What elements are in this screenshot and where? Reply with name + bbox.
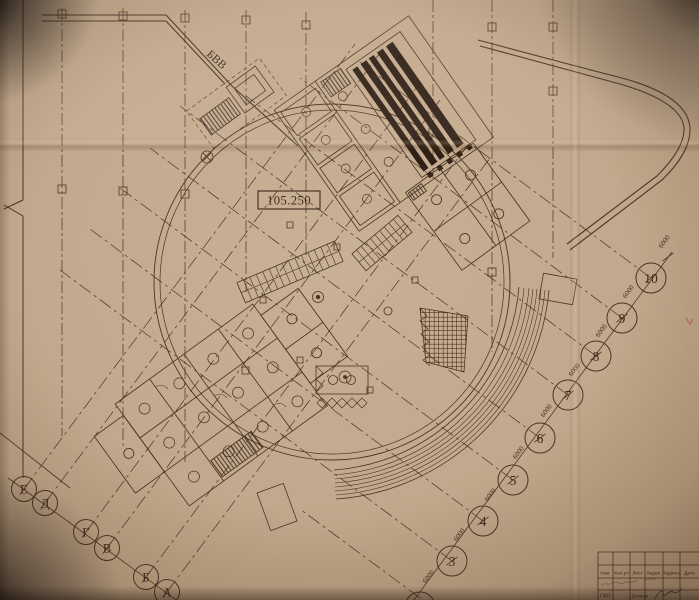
site-plan-drawing: 3 4 5 6 7 8 9 10 6000 6000 6000 6000 600… [0, 0, 699, 600]
axis-number: 8 [593, 349, 600, 364]
title-block-header: Подпись [662, 571, 681, 577]
axis-number: 4 [480, 514, 487, 529]
title-block-header: №док. [647, 571, 661, 577]
dimension-label-6000: 6000 [452, 526, 467, 542]
dimension-line-numbered: 3 4 5 6 7 8 9 10 6000 6000 6000 6000 600… [405, 233, 674, 600]
dimension-label-6000: 6000 [621, 283, 636, 299]
axis-number: 7 [565, 388, 572, 403]
survey-point-icon [201, 151, 213, 163]
axis-circle-2-partial [405, 592, 435, 600]
grid-marker-squares [58, 10, 557, 374]
checkered-area [420, 308, 468, 372]
handwriting-entry [601, 579, 656, 586]
axis-number: 10 [644, 271, 658, 286]
title-block-headers: Изм. Кол.уч Лист №док. Подпись Дата [600, 571, 695, 577]
dimension-label-6000: 6000 [657, 233, 672, 249]
escalator-bands [352, 42, 463, 172]
axis-number: 3 [449, 554, 456, 569]
axis-number: 6 [537, 431, 544, 446]
dimension-label-6000: 6000 [539, 402, 554, 418]
dimension-label-6000: 6000 [421, 568, 436, 584]
site-boundary [0, 0, 690, 488]
dimension-labels: 6000 6000 6000 6000 6000 6000 6000 6000 … [421, 233, 672, 584]
title-block-header: Дата [684, 571, 695, 577]
terrace-band [257, 273, 577, 530]
axis-letter: Д [41, 497, 50, 511]
axis-number: 9 [619, 311, 626, 326]
title-block-header: Лист [632, 571, 643, 577]
dimension-line-letters: Е Д Г В Б А [8, 477, 190, 600]
title-block-name: Волков [632, 594, 648, 600]
numbered-axis-lines [60, 62, 651, 598]
elevation-label: 105.250 [258, 191, 320, 209]
small-marker-circles [339, 307, 392, 383]
title-block-header: Кол.уч [614, 571, 629, 577]
title-block-header: Изм. [600, 571, 610, 577]
title-block-role: ГИП [600, 594, 611, 600]
title-block: Изм. Кол.уч Лист №док. Подпись Дата ГИП … [598, 552, 699, 600]
room-cluster-southwest [86, 277, 364, 527]
northwest-stair [187, 58, 287, 148]
elevation-mark-text: 105.250 [267, 194, 311, 208]
axis-letter: Е [20, 483, 28, 497]
blueprint-photo: 3 4 5 6 7 8 9 10 6000 6000 6000 6000 600… [0, 0, 699, 600]
axis-number: 5 [510, 473, 517, 488]
stair-hatch [211, 431, 263, 477]
red-pen-mark [686, 318, 693, 324]
dimension-label-6000: 6000 [511, 444, 526, 460]
dimension-label-6000: 6000 [567, 361, 582, 377]
dimension-label-6000: 6000 [594, 322, 609, 338]
axis-letter: Г [82, 526, 89, 540]
axis-letter: А [162, 586, 171, 600]
axis-letter: Б [142, 571, 149, 585]
axis-letter: В [103, 542, 111, 556]
column-point-icon [313, 292, 324, 303]
